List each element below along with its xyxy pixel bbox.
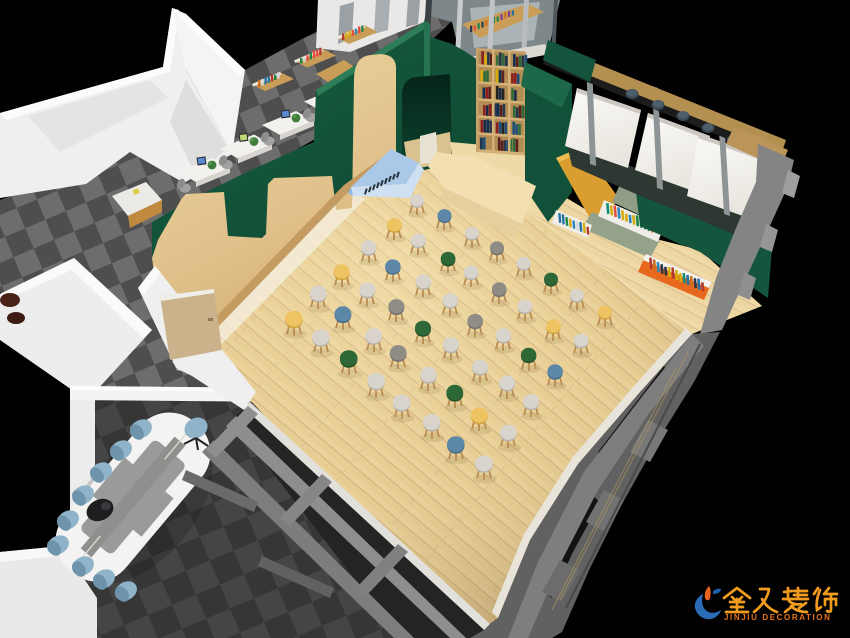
svg-text:JINJIU DECORATION: JINJIU DECORATION: [724, 613, 832, 622]
